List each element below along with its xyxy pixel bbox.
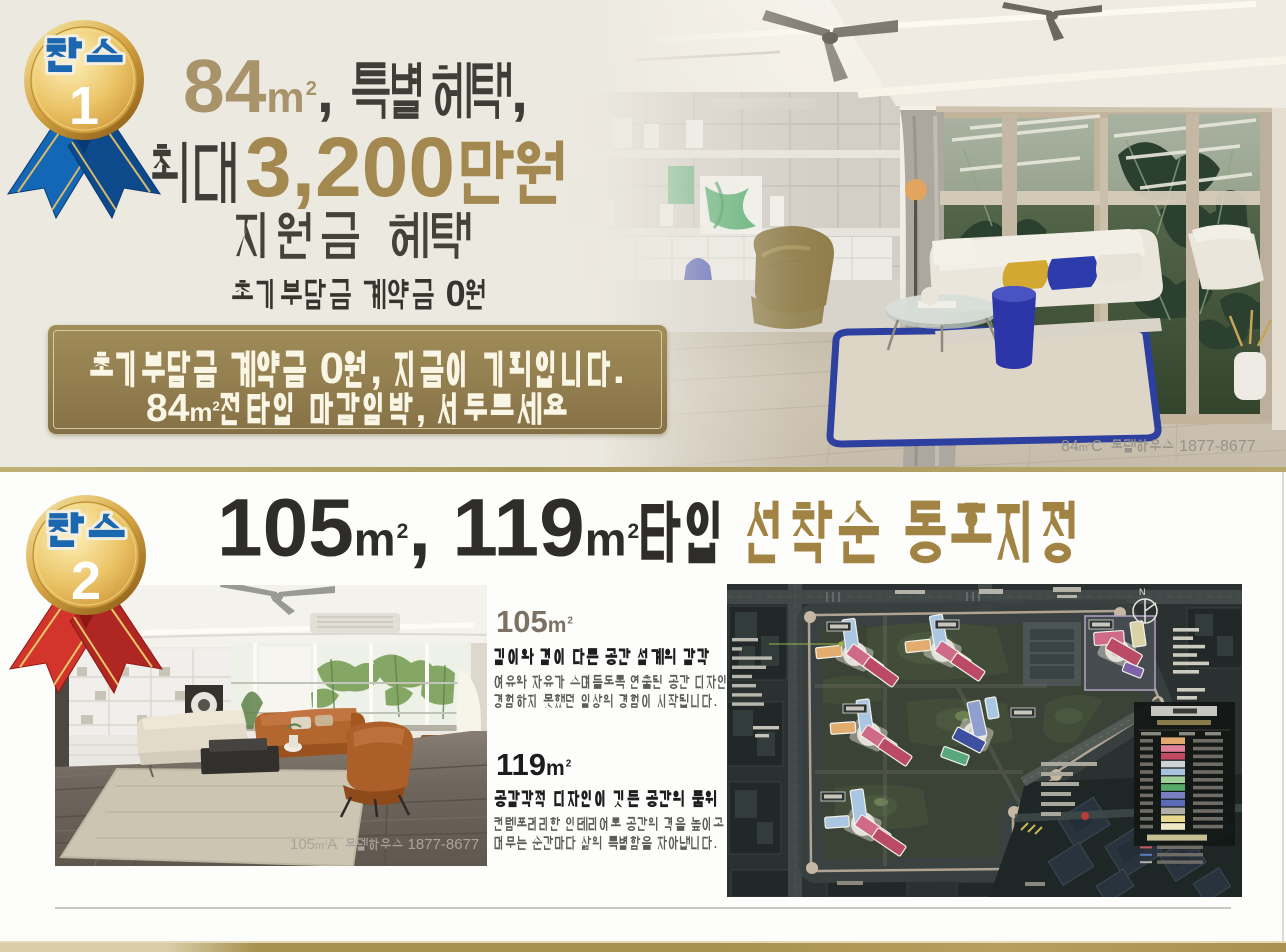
svg-text:m: m	[189, 397, 212, 427]
svg-text:119: 119	[496, 747, 546, 782]
svg-text:2: 2	[306, 78, 317, 100]
svg-text:2: 2	[212, 398, 219, 413]
svg-text:3,200: 3,200	[245, 120, 455, 214]
svg-text:m: m	[354, 513, 396, 566]
svg-text:m: m	[315, 840, 324, 852]
svg-text:2: 2	[628, 520, 640, 543]
svg-text:A: A	[327, 836, 337, 853]
svg-text:105: 105	[496, 604, 548, 639]
svg-text:.: .	[613, 344, 625, 393]
svg-text:105: 105	[217, 483, 354, 574]
svg-text:,: ,	[511, 57, 528, 126]
svg-text:2: 2	[397, 520, 409, 543]
svg-text:84: 84	[146, 387, 190, 430]
svg-text:0: 0	[445, 273, 465, 314]
svg-text:.: .	[713, 692, 718, 710]
svg-text:119: 119	[452, 483, 584, 574]
svg-text:m: m	[585, 513, 627, 566]
svg-text:m: m	[546, 757, 565, 780]
svg-text:,: ,	[408, 483, 431, 574]
svg-text:1: 1	[69, 76, 99, 136]
svg-text:2: 2	[71, 551, 101, 611]
svg-text:m: m	[548, 614, 567, 637]
svg-text:105: 105	[290, 836, 315, 853]
svg-text:C: C	[1091, 438, 1103, 455]
svg-text:84: 84	[1061, 438, 1079, 455]
svg-text:2: 2	[566, 758, 572, 769]
svg-text:m: m	[1079, 442, 1088, 454]
svg-text:,: ,	[370, 344, 382, 393]
svg-text:84: 84	[183, 44, 267, 128]
svg-text:,: ,	[415, 387, 426, 430]
svg-text:2: 2	[567, 615, 573, 626]
svg-text:N: N	[1139, 587, 1146, 597]
svg-text:.: .	[713, 834, 718, 852]
svg-text:,: ,	[317, 57, 334, 126]
svg-text:0: 0	[320, 344, 344, 393]
svg-text:1877-8677: 1877-8677	[1179, 438, 1256, 455]
svg-text:m: m	[267, 74, 305, 122]
svg-text:1877-8677: 1877-8677	[408, 836, 480, 853]
